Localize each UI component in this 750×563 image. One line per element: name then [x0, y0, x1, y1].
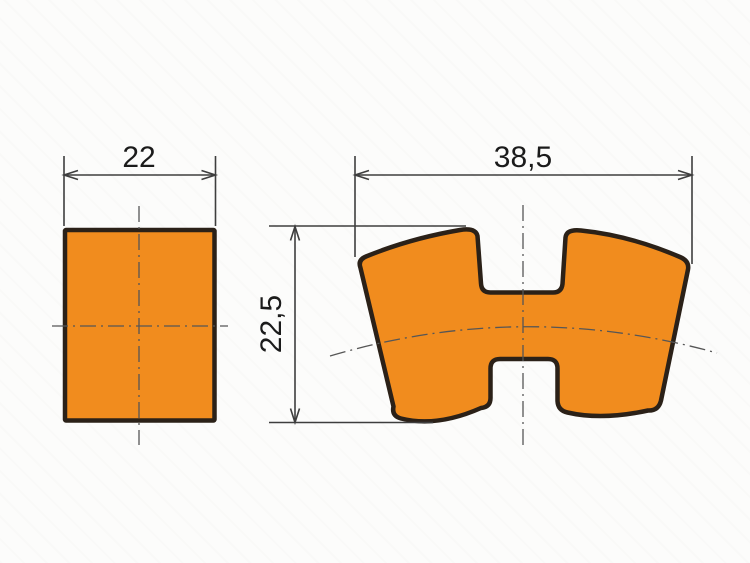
dimension-label: 38,5 — [494, 141, 552, 174]
dim-width-22: 22 — [64, 141, 216, 226]
side-view-part-face — [65, 230, 215, 421]
dimension-label: 22,5 — [255, 295, 288, 353]
front-view — [360, 229, 688, 421]
side-view — [65, 230, 215, 421]
technical-drawing-canvas: 22 38,5 22,5 — [0, 0, 750, 563]
front-view-part-face — [360, 229, 688, 421]
drawing-svg: 22 38,5 22,5 — [0, 0, 750, 563]
dimension-label: 22 — [122, 141, 155, 174]
